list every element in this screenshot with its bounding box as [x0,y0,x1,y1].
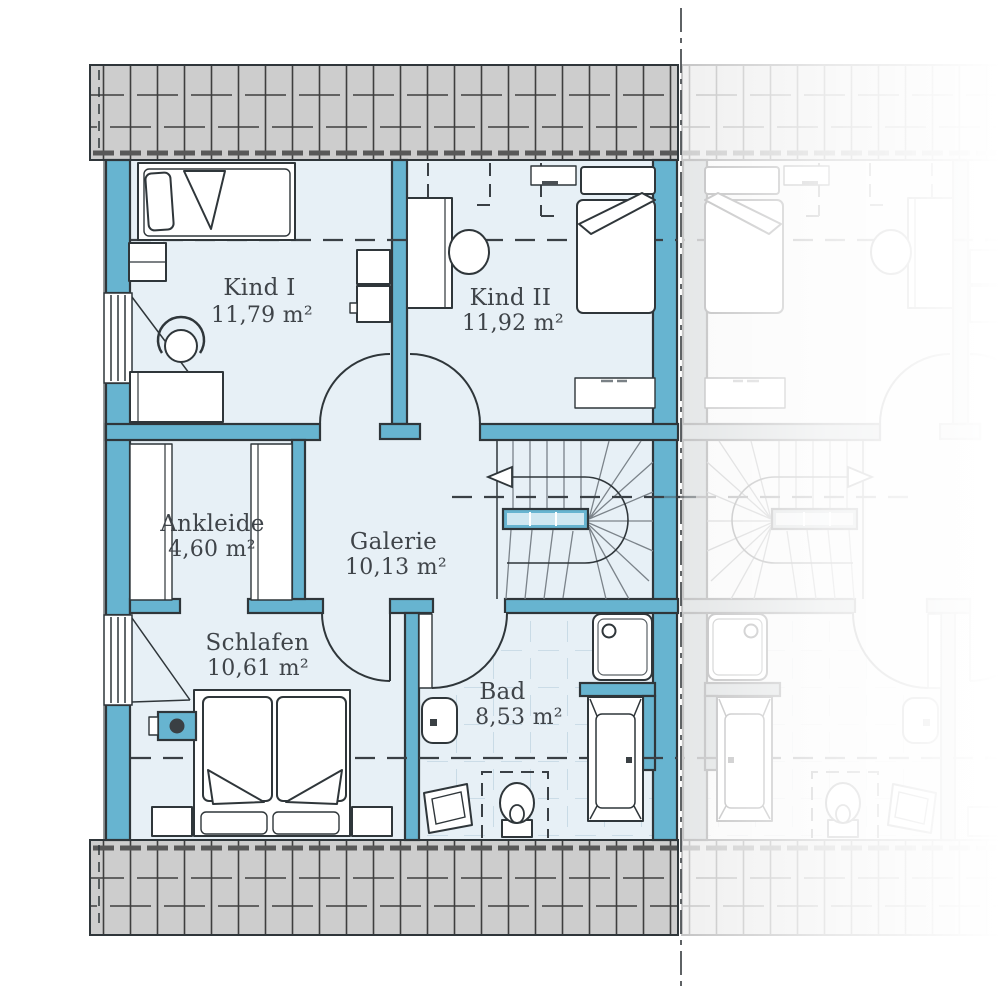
stair-rail-inner [507,513,584,525]
toilet [500,783,534,823]
pillow [201,812,267,834]
sideboard [575,378,655,408]
roof-band-top [90,65,678,160]
floor-plan-svg: Kind I 11,79 m² Kind II 11,92 m² Ankleid… [0,0,1000,1000]
fade-overlay [680,0,1000,1000]
sink-drain-icon [430,719,437,726]
shower-drain-icon [603,625,616,638]
chair-kind2 [449,230,489,274]
chair-kind1 [165,330,197,362]
house-unit-left [90,65,700,935]
bed-single-kind2 [581,167,655,194]
pillow [145,172,174,231]
shower [593,614,652,680]
partition-kind1-kind2 [392,160,407,424]
nightstand-left [152,807,192,836]
tub-drain-icon [626,757,632,763]
floor-plan-page: Kind I 11,79 m² Kind II 11,92 m² Ankleid… [0,0,1000,1000]
sink [422,698,457,743]
party-wall [653,160,677,840]
room-label-kind-ii: Kind II 11,92 m² [462,285,564,336]
dresser [357,250,390,284]
door-leaf-bad [419,614,432,688]
wall-schlafen-bad [405,613,419,840]
room-label-ankleide: Ankleide 4,60 m² [159,511,270,562]
room-label-galerie: Galerie 10,13 m² [345,529,447,580]
pillow [273,812,339,834]
roof-band-bottom [90,840,678,935]
desk-kind1 [130,372,223,422]
room-label-schlafen: Schlafen 10,61 m² [206,630,315,681]
wall-ankleide-galerie [292,440,305,599]
bath-mat [424,784,472,833]
nightstand-right [352,807,392,836]
